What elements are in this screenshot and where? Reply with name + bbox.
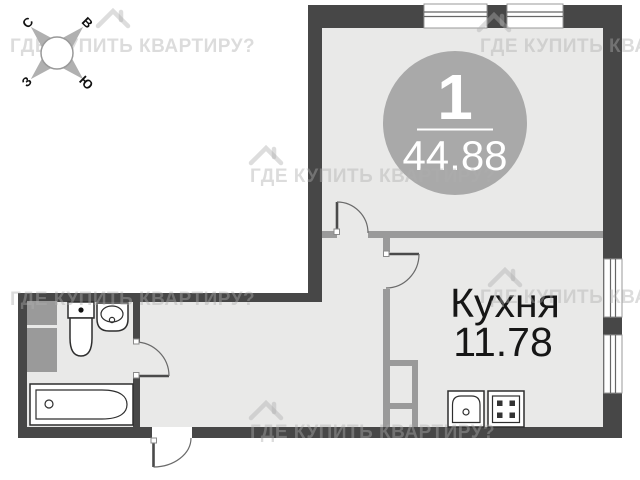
compass-west-label: З [18, 73, 34, 89]
door-hinge [384, 251, 390, 257]
partition-kitchen-stub [383, 238, 390, 252]
toilet-bowl [70, 318, 92, 356]
badge-number: 1 [437, 61, 473, 133]
floor-plan-page: 1 44.88 Кухня 11.78 ГДЕ КУПИТЬ КВАРТИРУ?… [0, 0, 640, 480]
watermark-text: ГДЕ КУПИТЬ КВАРТИРУ? [250, 166, 495, 187]
compass-hub [41, 37, 73, 69]
window-frame [604, 335, 622, 393]
watermark-text: ГДЕ КУПИТЬ КВАРТИРУ? [10, 289, 255, 310]
bathtub-icon [30, 384, 133, 425]
entrance-opening [152, 427, 192, 438]
window-icon [604, 335, 622, 393]
room-area-kitchen: 11.78 [453, 319, 553, 365]
wall-left [18, 293, 27, 438]
toilet-icon [68, 302, 94, 356]
door-hinge [134, 373, 140, 379]
duct-bathroom-lower [27, 328, 57, 372]
door-hinge [151, 438, 157, 443]
door-hinge [334, 229, 340, 235]
partition-kitchen-hall [383, 289, 390, 427]
burner [510, 413, 516, 419]
window-icon [424, 4, 487, 28]
door-swing-arc [154, 438, 192, 467]
partition-living-kitchen [368, 231, 603, 238]
wall-upper-left [308, 5, 322, 302]
watermark-text: ГДЕ КУПИТЬ КВАРТИРУ? [250, 422, 495, 443]
door-hinge [134, 339, 140, 344]
watermark-text: ГДЕ КУПИТЬ КВАРТИРУ? [480, 36, 640, 57]
house-watermark-icon [251, 148, 281, 163]
burner [497, 401, 503, 407]
house-watermark-icon [98, 11, 128, 26]
duct-kitchen-mid [390, 403, 412, 409]
burner [510, 401, 516, 407]
watermark-text: ГДЕ КУПИТЬ КВАРТИРУ? [480, 287, 640, 308]
door-arc-icon [151, 438, 191, 467]
floor-plan-canvas: 1 44.88 Кухня 11.78 ГДЕ КУПИТЬ КВАРТИРУ?… [0, 0, 640, 480]
burner [497, 413, 503, 419]
window-icon [507, 4, 563, 28]
duct-kitchen-right [412, 360, 418, 427]
wall-bathroom-lower [133, 375, 140, 427]
